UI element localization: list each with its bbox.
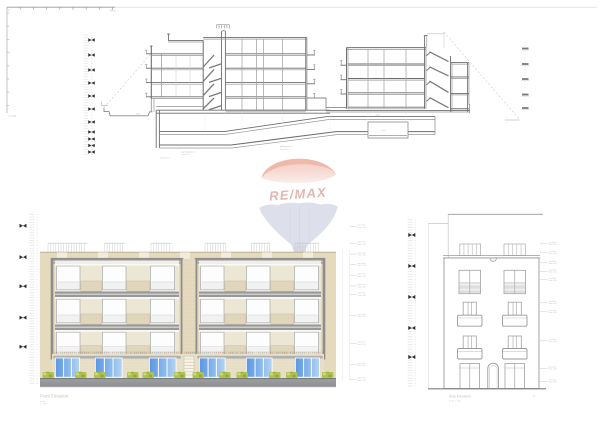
- svg-text:ramp 1:8: ramp 1:8: [280, 148, 287, 151]
- svg-text:level +0.00: level +0.00: [549, 272, 557, 274]
- svg-text:level +0.00: level +0.00: [549, 253, 557, 255]
- svg-text:level +0.00: level +0.00: [358, 316, 366, 318]
- svg-text:+0.00: +0.00: [375, 115, 380, 117]
- svg-text:level +0.00: level +0.00: [549, 369, 557, 371]
- svg-text:level +0.00: level +0.00: [358, 344, 366, 346]
- svg-text:Side Elevation: Side Elevation: [449, 395, 471, 399]
- svg-text:parking level -2: parking level -2: [182, 150, 195, 153]
- svg-text:level +0.00: level +0.00: [358, 295, 366, 297]
- svg-text:level +0.00: level +0.00: [358, 365, 366, 367]
- svg-text:level +0.00: level +0.00: [549, 341, 557, 343]
- svg-text:level +0.00: level +0.00: [358, 380, 366, 382]
- svg-text:level +0.00: level +0.00: [358, 255, 366, 257]
- svg-text:level +0.00: level +0.00: [549, 280, 557, 282]
- svg-text:Front Elevation: Front Elevation: [40, 394, 69, 399]
- svg-text:parking level -1: parking level -1: [280, 145, 293, 148]
- svg-text:level +0.00: level +0.00: [549, 382, 557, 384]
- svg-text:level +0.00: level +0.00: [358, 265, 366, 267]
- svg-text:level +0.00: level +0.00: [549, 303, 557, 305]
- svg-text:level +0.00: level +0.00: [358, 227, 366, 229]
- svg-text:sc 1:100: sc 1:100: [8, 116, 17, 118]
- svg-text:section a-a: section a-a: [160, 157, 171, 160]
- svg-text:Scale: Scale: [40, 401, 46, 403]
- svg-text:pool: pool: [382, 130, 386, 132]
- svg-text:level +0.00: level +0.00: [549, 244, 557, 246]
- svg-text:ramp: ramp: [136, 114, 140, 116]
- svg-text:ramp 1:8: ramp 1:8: [182, 153, 189, 156]
- svg-text:1 : 100: 1 : 100: [40, 404, 47, 406]
- svg-text:10 m: 10 m: [110, 10, 115, 13]
- svg-text:level +0.00: level +0.00: [358, 286, 366, 288]
- svg-text:Scale 1 : 100: Scale 1 : 100: [449, 401, 462, 403]
- svg-text:level +0.00: level +0.00: [549, 312, 557, 314]
- svg-text:level +0.00: level +0.00: [358, 276, 366, 278]
- svg-text:level +0.00: level +0.00: [549, 263, 557, 265]
- svg-text:level +0.00: level +0.00: [358, 244, 366, 246]
